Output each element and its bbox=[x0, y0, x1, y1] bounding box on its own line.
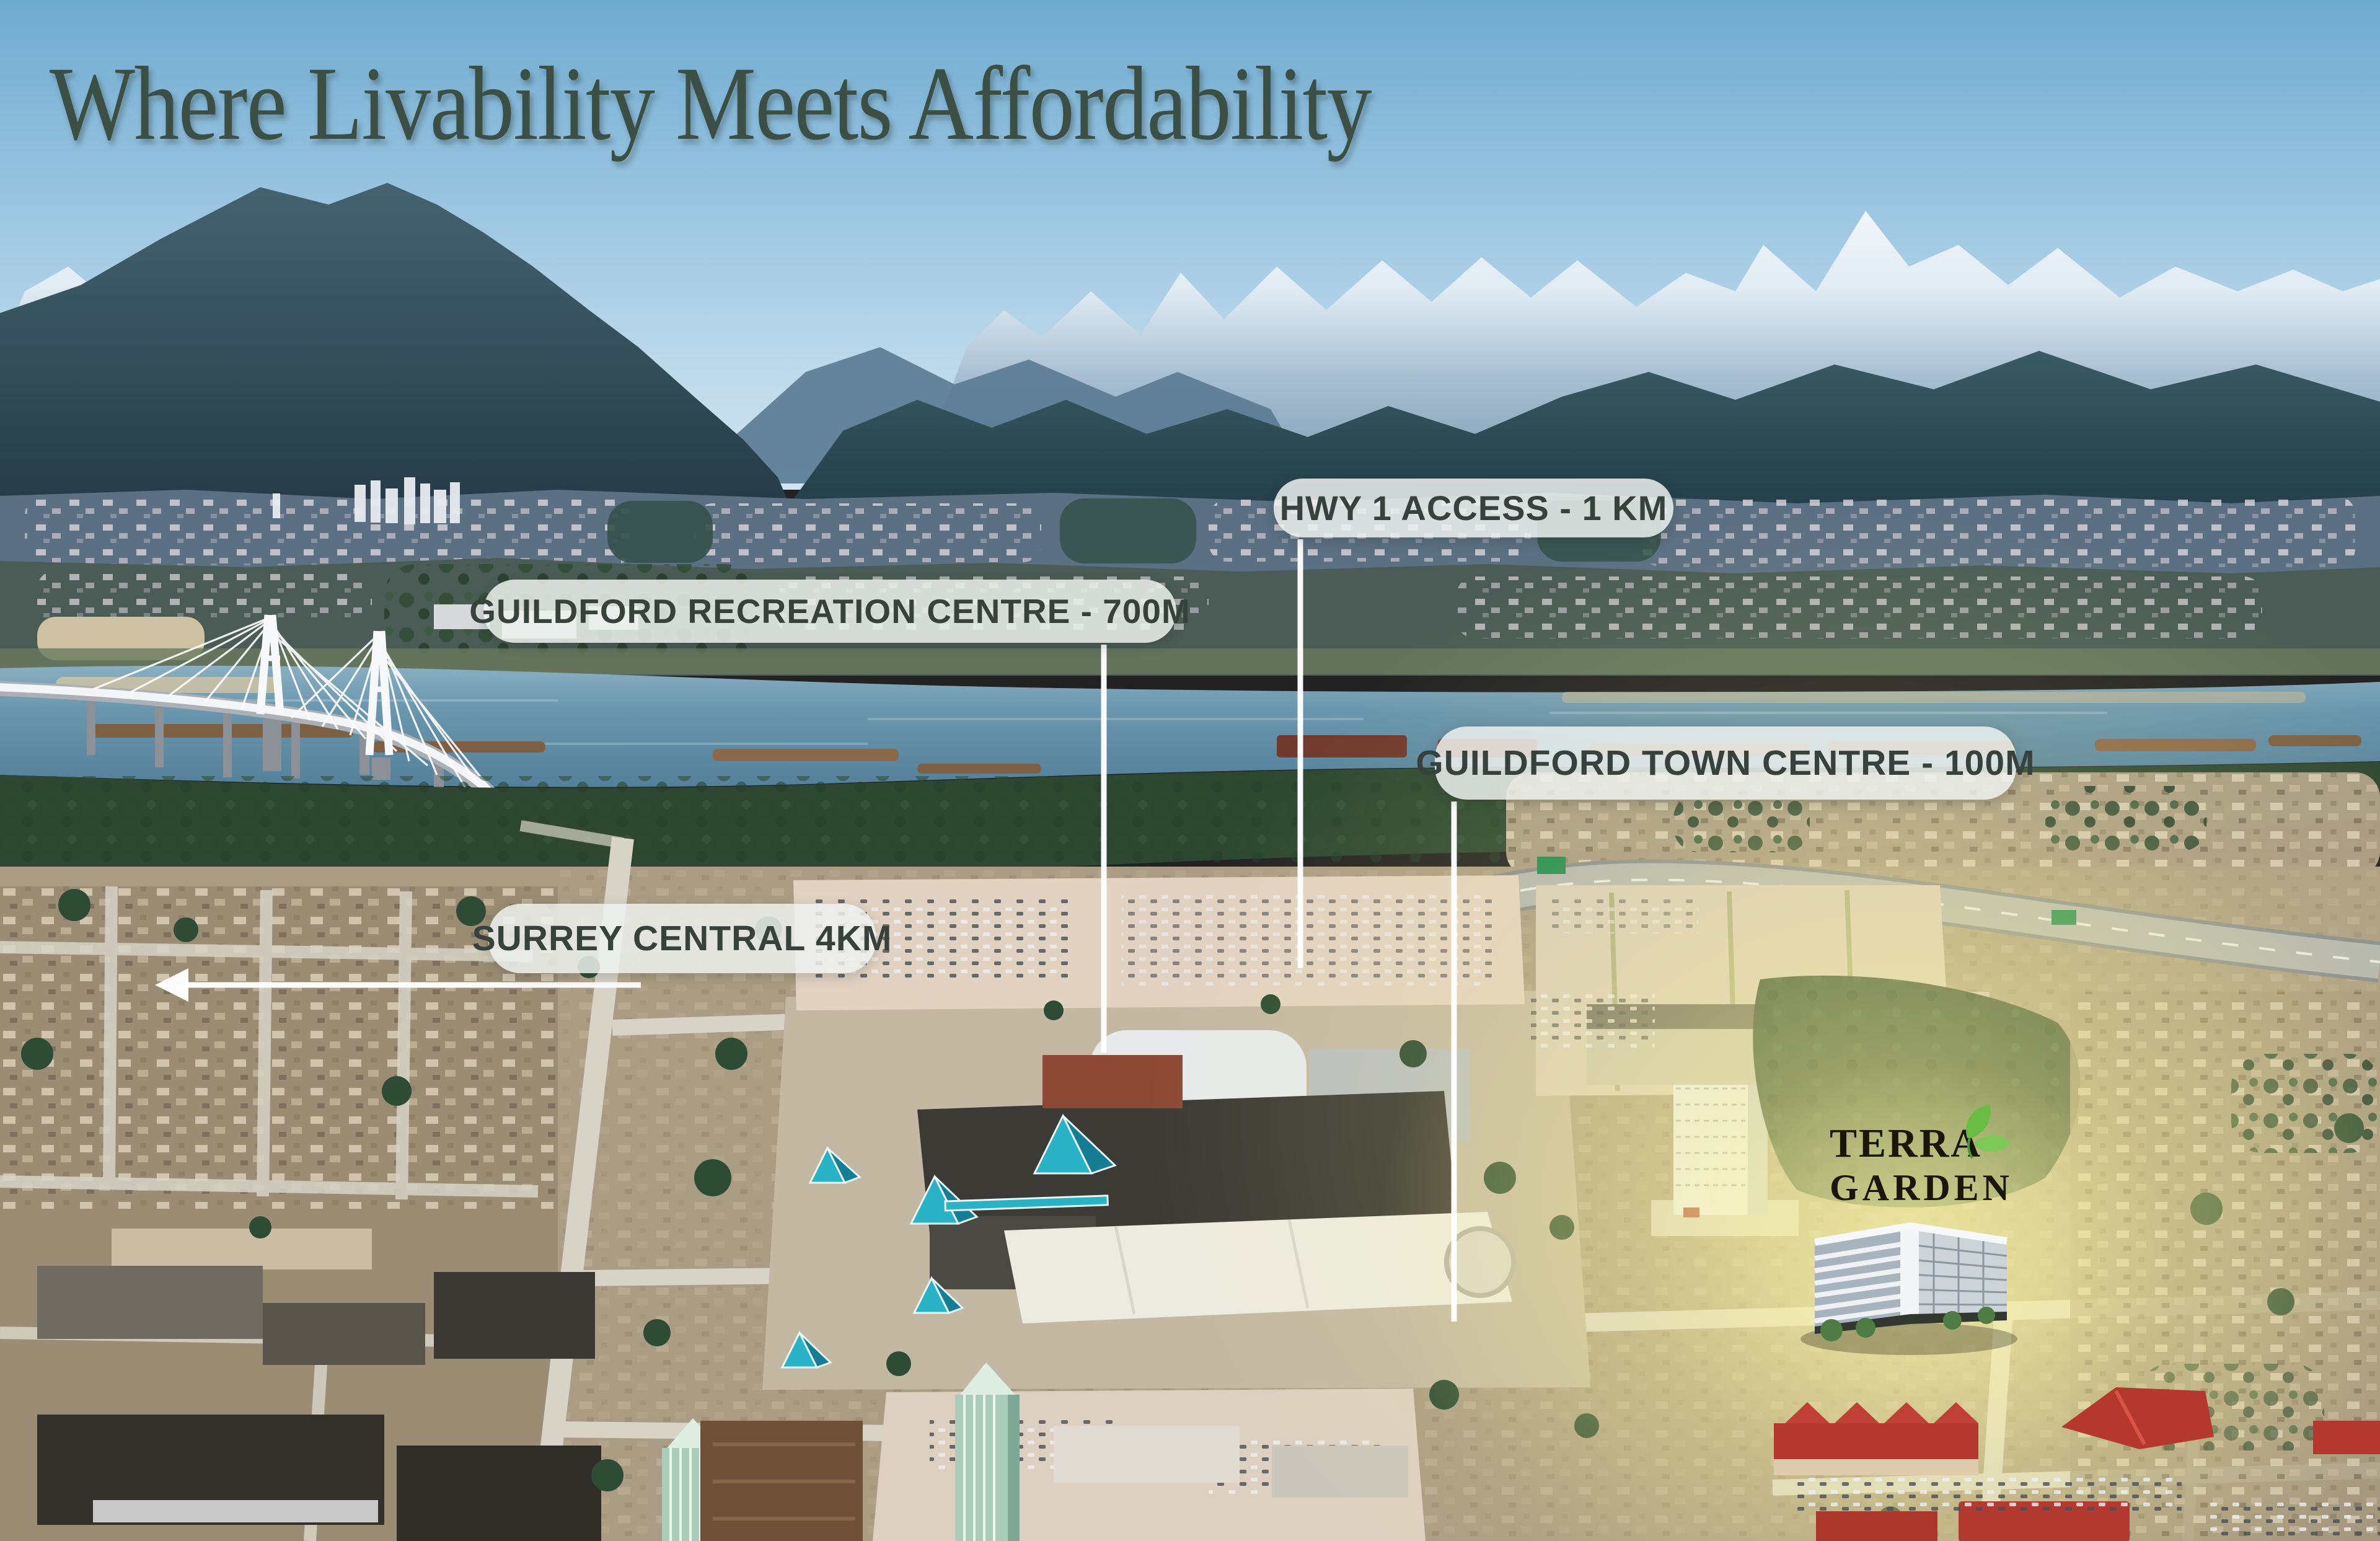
page-title: Where Livability Meets Affordability bbox=[50, 43, 1371, 164]
callout-label: HWY 1 ACCESS - 1 KM bbox=[1280, 488, 1668, 528]
callout-guildford-town-centre: GUILDFORD TOWN CENTRE - 100M bbox=[1435, 726, 2016, 800]
callout-hwy-1-access: HWY 1 ACCESS - 1 KM bbox=[1274, 479, 1673, 537]
callout-label: GUILDFORD RECREATION CENTRE - 700M bbox=[469, 591, 1191, 631]
callout-label: SURREY CENTRAL 4KM bbox=[472, 918, 892, 959]
brochure-page: Where Livability Meets Affordability GUI… bbox=[0, 0, 2380, 1541]
callout-label: GUILDFORD TOWN CENTRE - 100M bbox=[1416, 743, 2035, 784]
leaf-icon bbox=[1944, 1102, 2012, 1164]
project-name-line2: GARDEN bbox=[1830, 1169, 2028, 1206]
project-logo: TERRA GARDEN bbox=[1830, 1123, 2028, 1206]
callout-surrey-central: SURREY CENTRAL 4KM bbox=[488, 904, 876, 973]
callout-guildford-recreation-centre: GUILDFORD RECREATION CENTRE - 700M bbox=[483, 580, 1176, 643]
terra-garden-building bbox=[1800, 1225, 2017, 1355]
